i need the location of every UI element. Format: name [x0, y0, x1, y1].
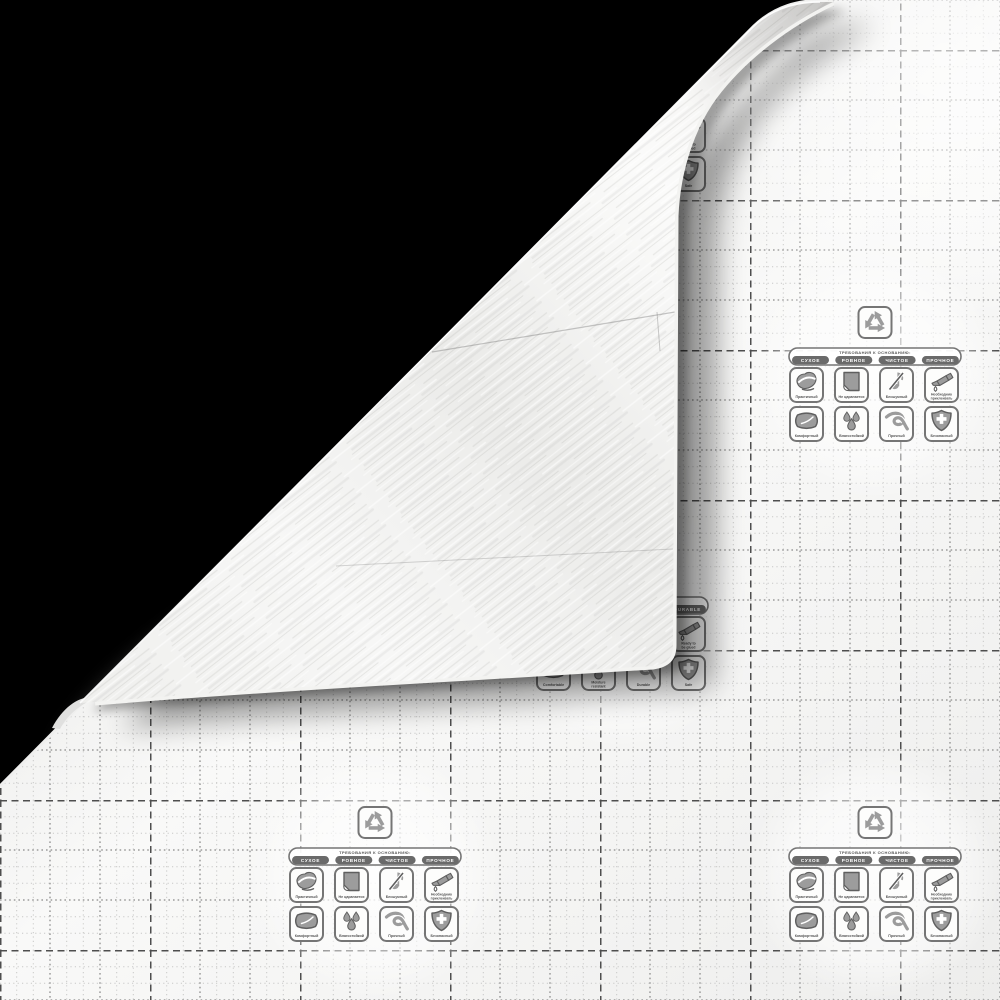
- feature-label: Прочный: [888, 934, 904, 938]
- feature-label: Безопасный: [430, 934, 452, 938]
- requirement-badge-label: ПРОЧНОЕ: [926, 358, 954, 363]
- requirement-badge-label: ПРОЧНОЕ: [926, 858, 954, 863]
- flooring-scene: DURABLEReady tobe gluedComfortableMoistu…: [0, 0, 1000, 1000]
- requirements-title: ТРЕБОВАНИЯ К ОСНОВАНИЮ:: [839, 350, 911, 355]
- requirement-badge-label: СУХОЕ: [801, 858, 820, 863]
- feature-label: Не царапается: [839, 395, 865, 399]
- feature-label: Комфортный: [295, 934, 319, 938]
- requirement-badge-label: РОВНОЕ: [342, 858, 366, 863]
- feature-label: Необходимоприклеивать: [931, 393, 953, 401]
- requirement-badge-label: ЧИСТОЕ: [885, 358, 908, 363]
- feature-label: Необходимоприклеивать: [931, 893, 953, 901]
- requirement-badge-label: СУХОЕ: [801, 358, 820, 363]
- no-scratch-icon: [844, 373, 859, 391]
- feature-label: Не царапается: [839, 895, 865, 899]
- no-scratch-icon: [344, 873, 359, 891]
- feature-label: Необходимоприклеивать: [431, 893, 453, 901]
- feature-label: Влагостойкий: [339, 934, 364, 938]
- feature-label: Влагостойкий: [839, 434, 864, 438]
- feature-label: Бесшумный: [886, 895, 908, 899]
- pillow-icon: [296, 913, 318, 928]
- feature-label: Бесшумный: [886, 395, 908, 399]
- pillow-icon: [796, 913, 818, 928]
- feature-label: Комфортный: [795, 934, 819, 938]
- product-image-flooring-roll: DURABLEReady tobe gluedComfortableMoistu…: [0, 0, 1000, 1000]
- feature-label: Комфортный: [795, 434, 819, 438]
- feature-label: Влагостойкий: [839, 934, 864, 938]
- requirement-badge-label: ЧИСТОЕ: [385, 858, 408, 863]
- feature-label: Бесшумный: [386, 895, 408, 899]
- no-scratch-icon: [844, 873, 859, 891]
- feature-label: Практичный: [795, 895, 817, 899]
- requirements-title: ТРЕБОВАНИЯ К ОСНОВАНИЮ:: [839, 850, 911, 855]
- feature-label: Практичный: [295, 895, 317, 899]
- requirement-badge-label: РОВНОЕ: [842, 358, 866, 363]
- requirements-title: ТРЕБОВАНИЯ К ОСНОВАНИЮ:: [339, 850, 411, 855]
- feature-label: Прочный: [888, 434, 904, 438]
- feature-label: Прочный: [388, 934, 404, 938]
- requirement-badge-label: СУХОЕ: [301, 858, 320, 863]
- pillow-icon: [796, 413, 818, 428]
- feature-label: Не царапается: [339, 895, 365, 899]
- requirement-badge-label: РОВНОЕ: [842, 858, 866, 863]
- requirement-badge-label: ПРОЧНОЕ: [426, 858, 454, 863]
- feature-label: Безопасный: [930, 434, 952, 438]
- feature-label: Практичный: [795, 395, 817, 399]
- feature-label: Безопасный: [930, 934, 952, 938]
- requirement-badge-label: ЧИСТОЕ: [885, 858, 908, 863]
